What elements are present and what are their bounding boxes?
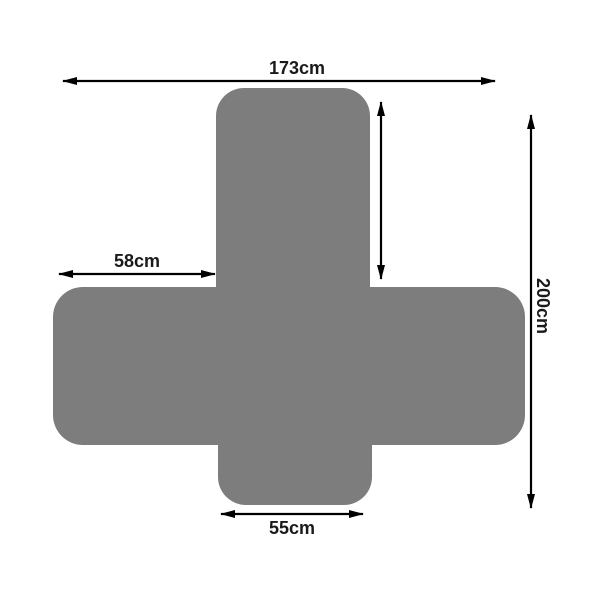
bottom-flap-width-label: 55cm xyxy=(269,519,315,537)
cover-top-flap xyxy=(216,88,370,298)
top-width-label: 173cm xyxy=(269,59,325,77)
cover-body xyxy=(53,287,525,445)
left-overhang-label: 58cm xyxy=(114,252,160,270)
dimension-diagram: 173cm 58cm 200cm 55cm xyxy=(0,0,600,600)
total-length-label: 200cm xyxy=(534,278,552,334)
cover-bottom-flap xyxy=(218,430,372,505)
